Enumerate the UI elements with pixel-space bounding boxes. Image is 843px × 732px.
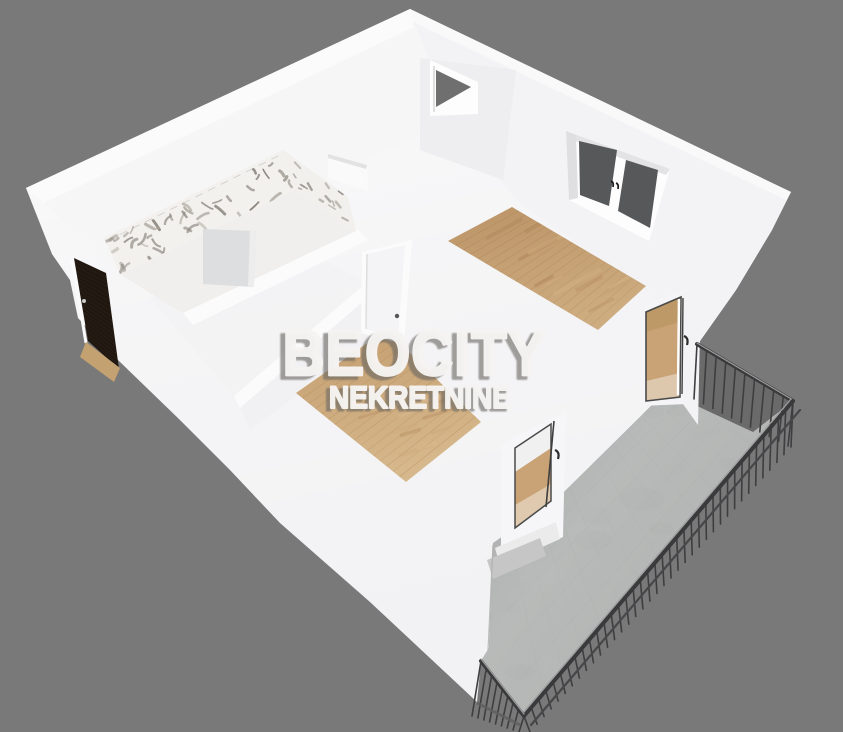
svg-text:NEKRETNINE: NEKRETNINE bbox=[329, 380, 511, 415]
svg-text:BEOCITY: BEOCITY bbox=[283, 318, 548, 389]
